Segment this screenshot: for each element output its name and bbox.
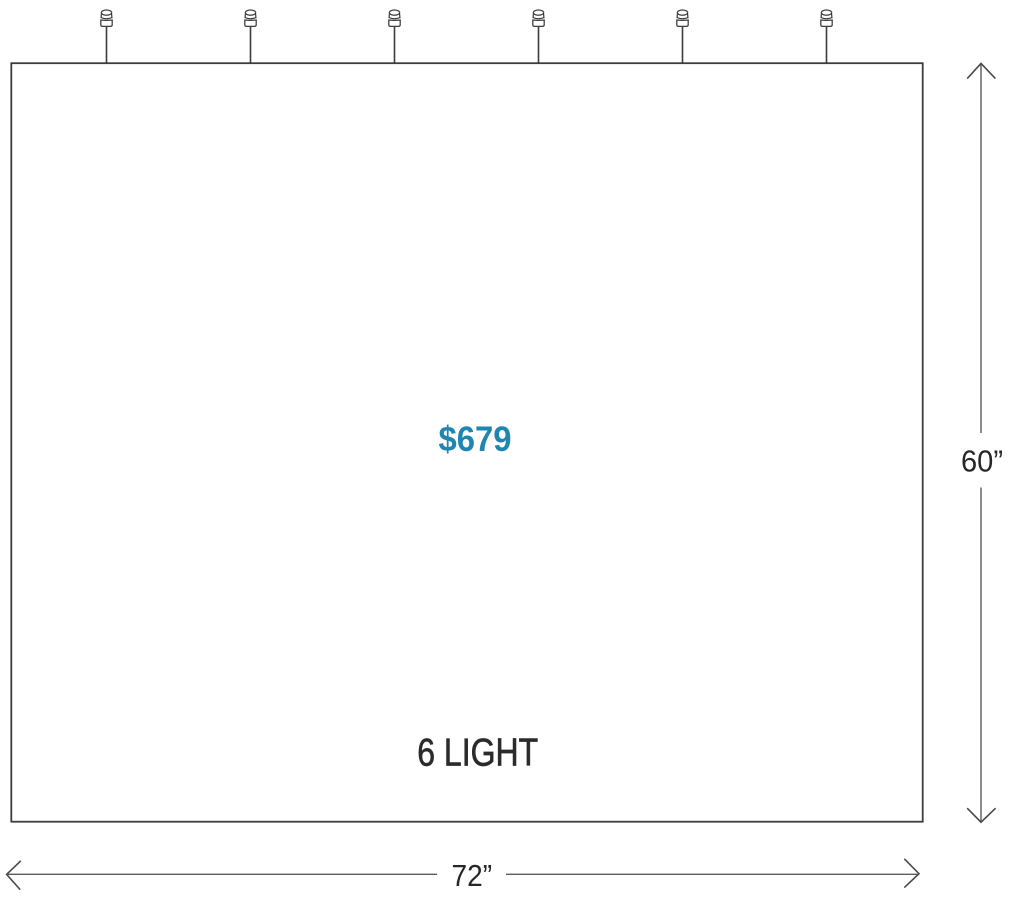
svg-text:$679: $679	[439, 420, 512, 459]
svg-text:72”: 72”	[452, 859, 493, 893]
svg-text:6 LIGHT: 6 LIGHT	[417, 732, 538, 775]
svg-text:60”: 60”	[961, 445, 1003, 479]
